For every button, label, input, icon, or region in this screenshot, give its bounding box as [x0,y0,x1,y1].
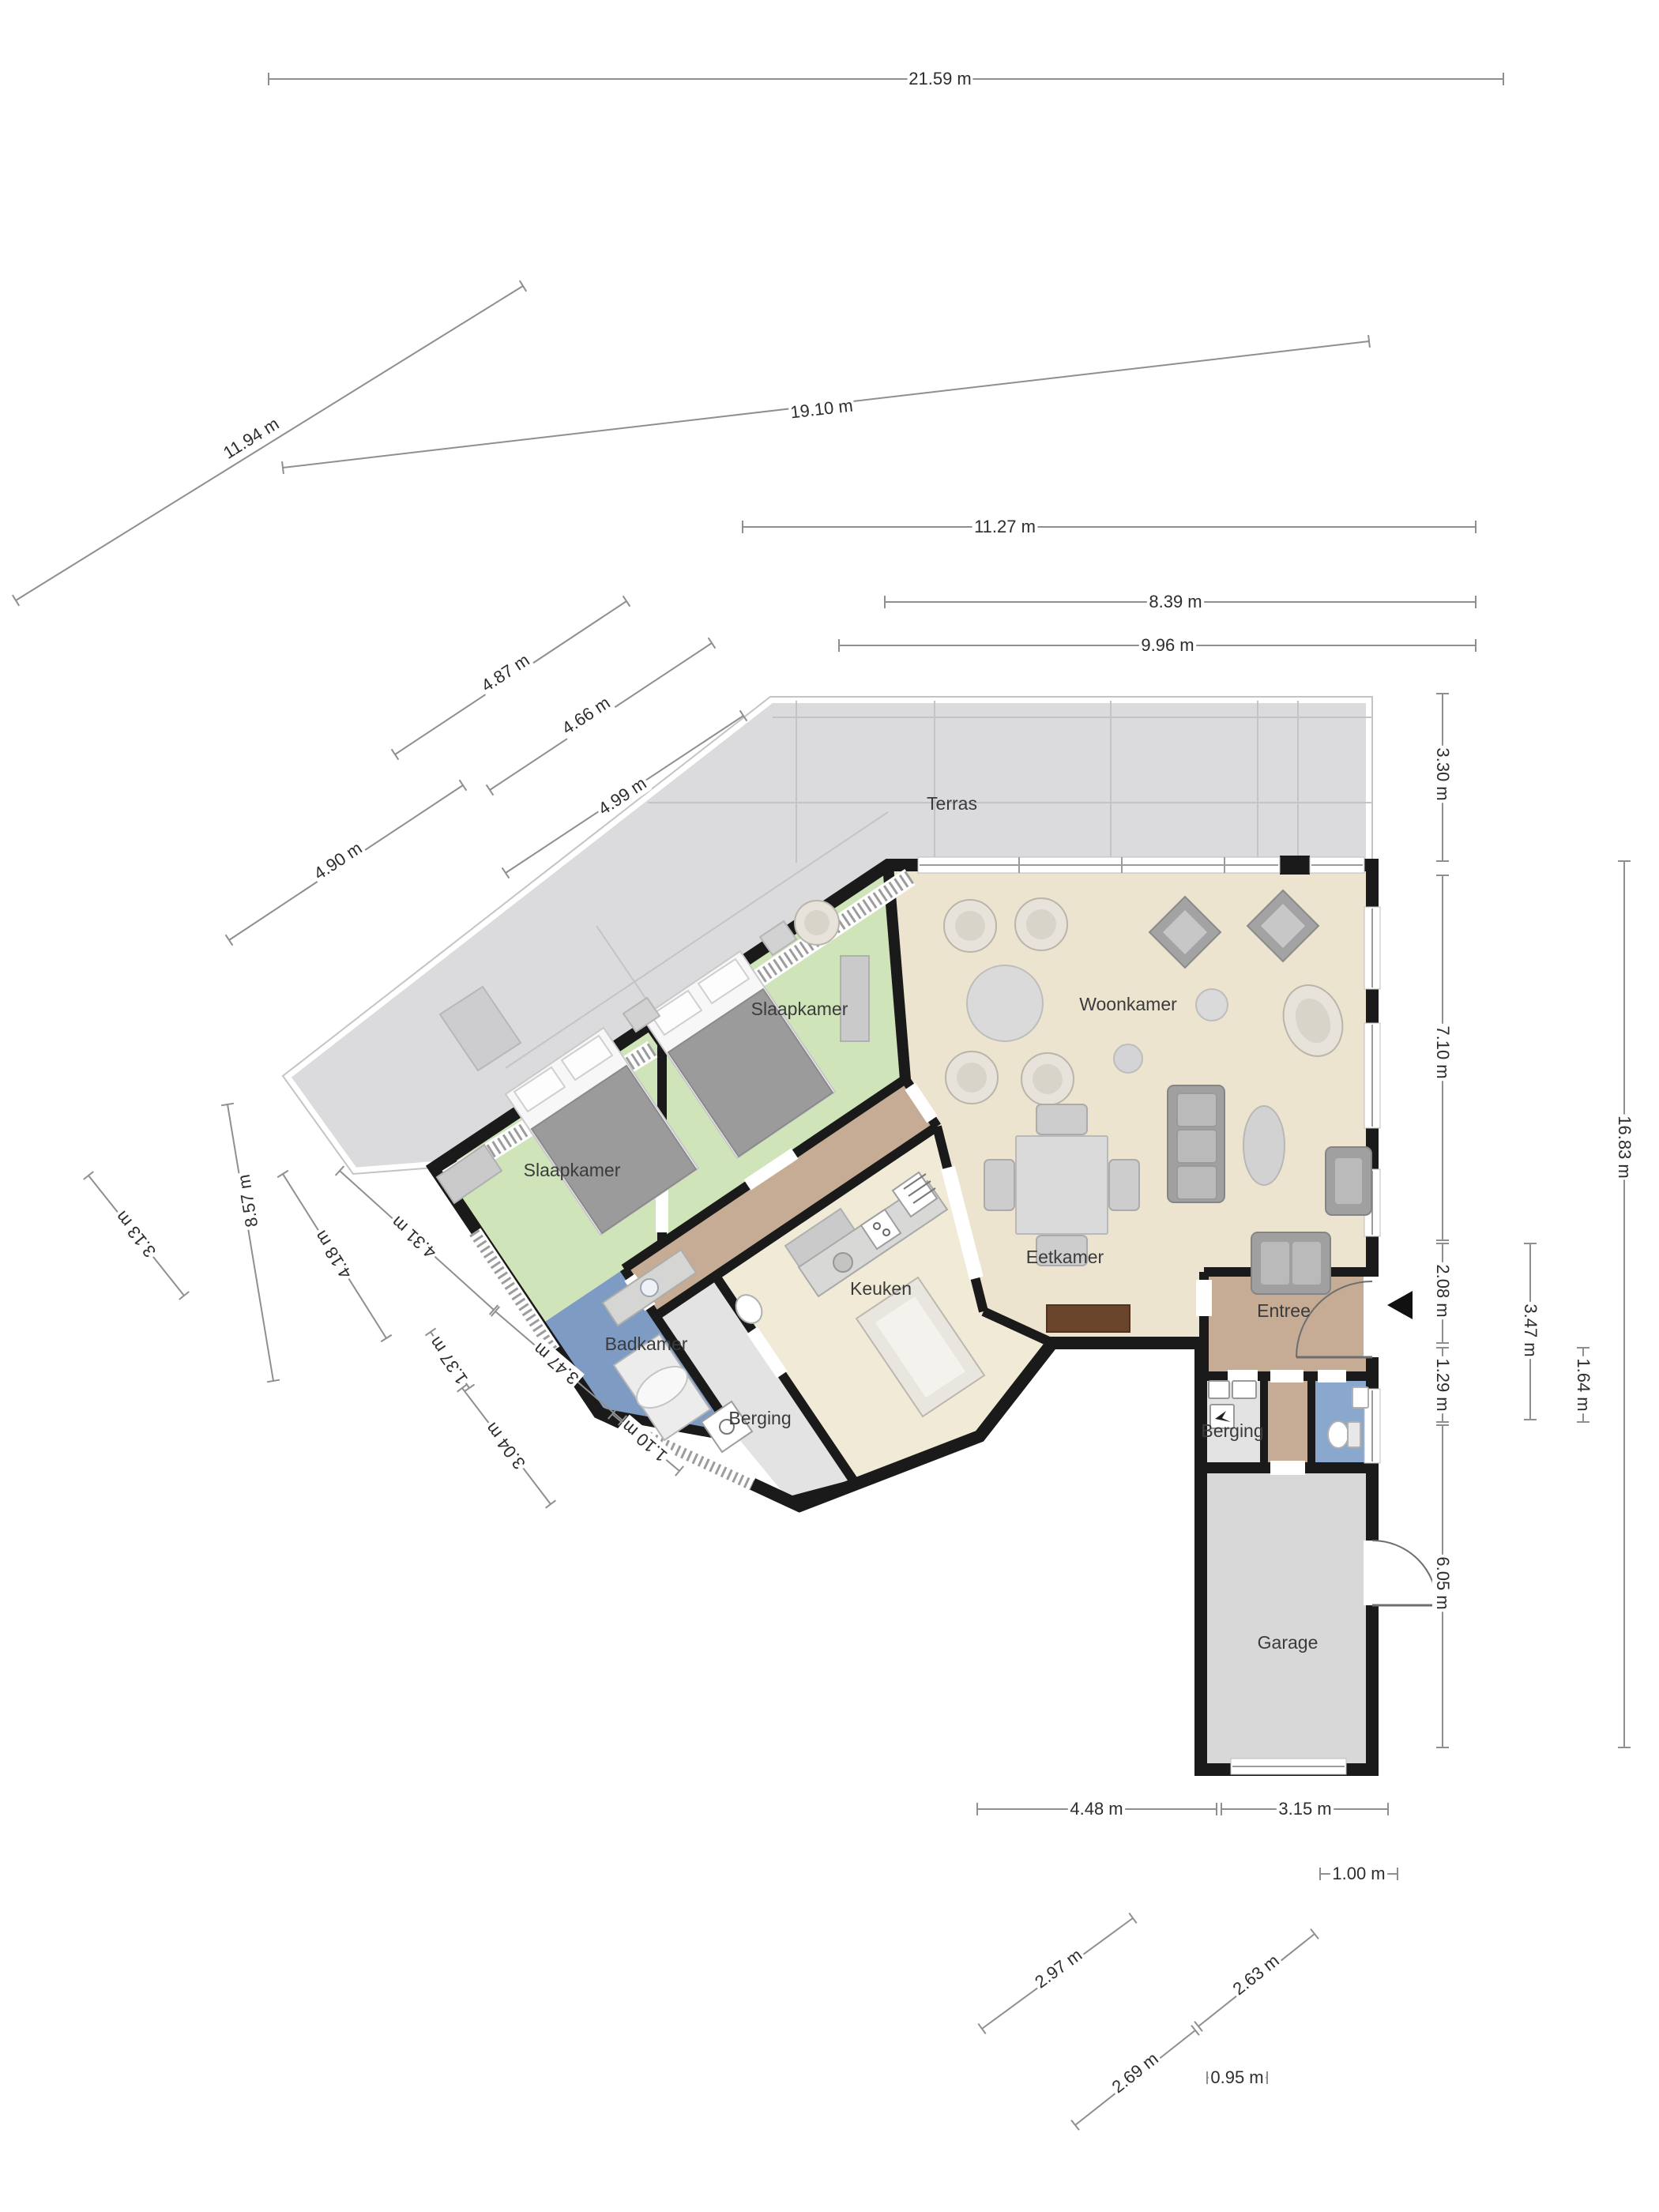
furniture-rect [984,1160,1014,1210]
room-label-garage: Garage [1258,1632,1319,1653]
dimension: 2.69 m [1071,2026,1199,2131]
furniture-circle [833,1253,852,1272]
dimension: 19.10 m [282,335,1370,474]
dim-tick [425,1328,435,1335]
dim-tick [520,280,526,292]
furniture-rect [1209,1381,1229,1398]
furniture-rect [1177,1166,1217,1199]
dim-tick [381,1335,392,1342]
furniture-ellipse [1243,1106,1285,1185]
dim-label: 7.10 m [1433,1025,1453,1078]
dim-tick [221,1104,234,1106]
furniture-rect [1348,1422,1360,1447]
furniture-circle [1026,909,1056,939]
dim-tick [84,1172,94,1179]
room-label-eetkamer: Eetkamer [1026,1247,1104,1267]
furniture-rect [1177,1130,1217,1163]
room-garage [1204,1471,1372,1766]
dim-tick [13,595,19,606]
dim-label: 6.05 m [1433,1556,1453,1609]
dim-tick [1368,335,1370,348]
dim-label: 8.57 m [234,1173,262,1228]
dim-tick [978,2024,985,2034]
dimension: 1.29 m [1432,1348,1453,1422]
furniture-rect [1261,1242,1289,1285]
door-swing-arc [1372,1540,1437,1605]
room-label-terras: Terras [927,793,977,814]
dim-label: 3.04 m [481,1419,529,1473]
dim-label: 11.27 m [974,517,1036,536]
dimension: 16.83 m [1614,861,1635,1747]
dim-line [228,1104,273,1381]
dimension: 11.94 m [13,280,526,606]
dim-tick [277,1171,288,1178]
dim-tick [267,1380,280,1382]
dim-tick [179,1292,190,1300]
dim-tick [502,867,510,878]
furniture-circle [955,911,985,941]
furniture-rect [1352,1387,1368,1408]
floorplan-page: TerrasWoonkamerEetkamerSlaapkamerSlaapka… [0,0,1659,2212]
dim-label: 2.63 m [1229,1951,1283,1999]
furniture-rect [1109,1160,1139,1210]
dimension: 7.10 m [1432,875,1453,1240]
furniture-circle [1033,1064,1063,1094]
furniture-rect [1016,1136,1108,1234]
furniture-rect [1047,1305,1130,1332]
furniture-circle [1196,989,1228,1021]
dim-tick [546,1500,556,1508]
dimension: 21.59 m [269,69,1503,89]
dim-label: 2.69 m [1108,2048,1162,2097]
furniture-ellipse [1328,1421,1349,1448]
dim-label: 4.87 m [478,650,533,696]
room-label-keuken: Keuken [850,1278,912,1299]
dim-label: 3.30 m [1433,747,1453,800]
dimension: 3.13 m [84,1172,190,1300]
furniture-rect [1335,1158,1362,1204]
room-label-slaapkamer-2: Slaapkamer [751,999,848,1019]
furniture-rect [1292,1242,1321,1285]
room-label-berging-links: Berging [728,1408,791,1428]
furniture-rect [1036,1104,1087,1134]
furniture-circle [1114,1044,1142,1073]
dimension: 3.15 m [1221,1799,1388,1819]
dim-label: 3.15 m [1278,1799,1331,1819]
dim-label: 2.97 m [1031,1945,1085,1992]
furniture-circle [957,1063,987,1093]
dim-label: 2.08 m [1433,1264,1453,1317]
dimension: 3.04 m [457,1384,556,1508]
dim-tick [460,780,467,790]
entrance-arrow-icon [1387,1291,1413,1319]
furniture-circle [641,1279,658,1296]
room-label-entree: Entree [1257,1300,1311,1321]
dimension: 3.47 m [1520,1243,1540,1420]
dim-label: 1.00 m [1332,1864,1385,1883]
dim-label: 4.48 m [1070,1799,1123,1819]
dimension: 4.48 m [977,1799,1217,1819]
room-label-badkamer: Badkamer [605,1334,688,1354]
dim-label: 9.96 m [1141,635,1194,655]
dim-tick [392,749,399,759]
dim-tick [1071,2120,1079,2131]
dim-label: 19.10 m [789,396,854,423]
dim-tick [226,935,233,945]
dim-line [16,286,523,600]
dim-label: 4.90 m [310,838,366,884]
dimension: 8.57 m [221,1104,280,1382]
dim-label: 1.29 m [1433,1358,1453,1411]
dim-tick [1129,1913,1136,1924]
dim-label: 3.13 m [111,1207,160,1261]
dimension: 4.87 m [392,596,630,759]
dim-label: 0.95 m [1210,2067,1263,2087]
dim-label: 21.59 m [908,69,972,88]
dim-tick [623,596,630,606]
dim-label: 1.37 m [425,1334,472,1389]
room-label-woonkamer: Woonkamer [1079,994,1177,1014]
dimension: 11.27 m [743,517,1476,537]
room-label-berging-rechts: Berging [1201,1420,1263,1441]
floorplan-canvas: TerrasWoonkamerEetkamerSlaapkamerSlaapka… [0,0,1659,2212]
dimension: 3.30 m [1432,694,1453,861]
dimension: 4.90 m [226,780,467,945]
dim-tick [709,638,716,648]
dimension: 2.97 m [978,1913,1136,2034]
dimension: 9.96 m [839,635,1476,656]
dim-label: 16.83 m [1615,1115,1635,1179]
dimension: 2.08 m [1432,1243,1453,1343]
dim-label: 8.39 m [1149,592,1202,611]
dimension: 1.64 m [1573,1348,1593,1422]
furniture-circle [967,965,1043,1041]
room-gang-garage [1264,1376,1311,1468]
dim-tick [1311,1929,1319,1939]
dimension: 0.95 m [1207,2067,1267,2088]
dim-label: 3.47 m [1521,1303,1540,1356]
dim-label: 4.66 m [559,693,614,739]
dimension: 2.63 m [1194,1929,1319,2032]
furniture-circle [804,910,829,935]
dim-label: 1.64 m [1574,1358,1593,1411]
dim-label: 4.31 m [387,1213,440,1263]
dimension: 4.18 m [277,1171,392,1342]
dim-tick [487,784,494,795]
furniture-rect [1177,1093,1217,1127]
dimension: 8.39 m [885,592,1476,612]
dim-tick [282,461,284,474]
dimension: 1.00 m [1320,1864,1398,1884]
dimension: 1.37 m [424,1328,475,1391]
furniture-rect [1232,1381,1256,1398]
dimension: 6.05 m [1432,1425,1453,1747]
room-label-slaapkamer-1: Slaapkamer [524,1160,621,1180]
